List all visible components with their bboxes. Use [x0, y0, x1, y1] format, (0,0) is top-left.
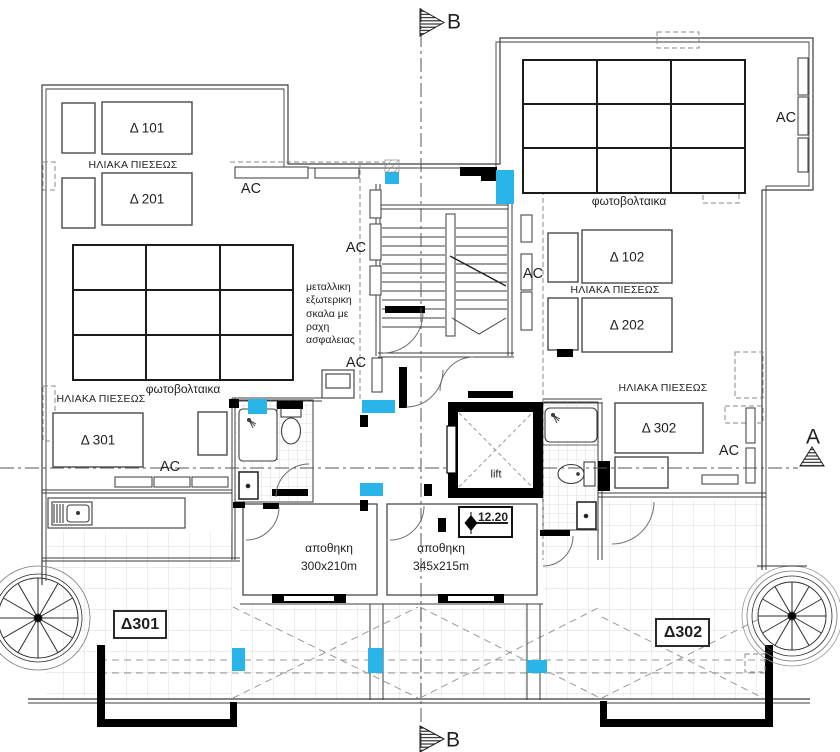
unit-label-d101: Δ 101 [130, 121, 165, 135]
ac-label-1: AC [241, 182, 261, 197]
staircase [376, 184, 512, 356]
toilet-right [558, 462, 595, 486]
ac-label-5: AC [776, 111, 796, 126]
ac-label-4: AC [523, 267, 543, 282]
sliding-door-gaps [284, 596, 494, 601]
shower-right [545, 408, 597, 442]
shower-left [239, 409, 277, 461]
plan-linework [0, 0, 840, 752]
section-a-arrow [800, 447, 824, 466]
level-value: 12.20 [478, 511, 508, 523]
photovoltaic-grid-left [73, 245, 293, 380]
lift-shaft [447, 402, 543, 498]
lift-door [447, 426, 456, 473]
unit-label-d202: Δ 202 [610, 318, 645, 332]
solar-label-right-upper: ΗΛΙΑΚΑ ΠΙΕΣΕΩΣ [571, 285, 660, 296]
storage-right-size: 345x215m [413, 560, 469, 572]
solar-label-right-lower: ΗΛΙΑΚΑ ΠΙΕΣΕΩΣ [619, 383, 708, 394]
column-hatch [385, 160, 399, 172]
ac-label-6: AC [160, 460, 180, 475]
pv-label-left: φωτοβολταικα [146, 383, 221, 395]
pv-label-right: φωτοβολταικα [592, 195, 667, 207]
ac-label-2: AC [346, 241, 366, 256]
solar-label-top-left: ΗΛΙΑΚΑ ΠΙΕΣΕΩΣ [89, 160, 178, 171]
unit-label-d302: Δ 302 [642, 421, 677, 435]
floor-plan-drawing: B B A Δ 101 Δ 201 ΗΛΙΑΚΑ ΠΙΕΣΕΩΣ φωτοβολ… [0, 0, 840, 752]
section-b-bottom-arrow [420, 726, 444, 752]
terrace-label-d302: Δ302 [664, 625, 702, 641]
photovoltaic-grid-right [523, 60, 745, 193]
roof-appliance [322, 370, 354, 398]
section-a-label: A [806, 427, 820, 448]
basin-left [239, 472, 258, 499]
section-b-top-label: B [447, 12, 461, 33]
solar-label-left: ΗΛΙΑΚΑ ΠΙΕΣΕΩΣ [57, 394, 146, 405]
lift-label: lift [491, 470, 502, 481]
stair-note: μεταλλικη εξωτερικη σκαλα με ραχη ασφαλε… [306, 281, 368, 348]
toilet-left [281, 405, 301, 444]
terrace-label-d301: Δ301 [121, 617, 159, 633]
kitchen-counter [48, 498, 185, 528]
ac-label-7: AC [719, 444, 739, 459]
unit-label-d301: Δ 301 [81, 433, 116, 447]
storage-left-size: 300x210m [301, 560, 357, 572]
basin-right [577, 502, 596, 529]
section-b-top-arrow [420, 9, 444, 36]
storage-left-name: αποθηκη [305, 542, 353, 554]
unit-label-d201: Δ 201 [130, 192, 165, 206]
section-b-bottom-label: B [446, 730, 460, 751]
storage-right-name: αποθηκη [417, 542, 465, 554]
unit-label-d102: Δ 102 [610, 250, 645, 264]
ac-label-3: AC [346, 356, 366, 371]
